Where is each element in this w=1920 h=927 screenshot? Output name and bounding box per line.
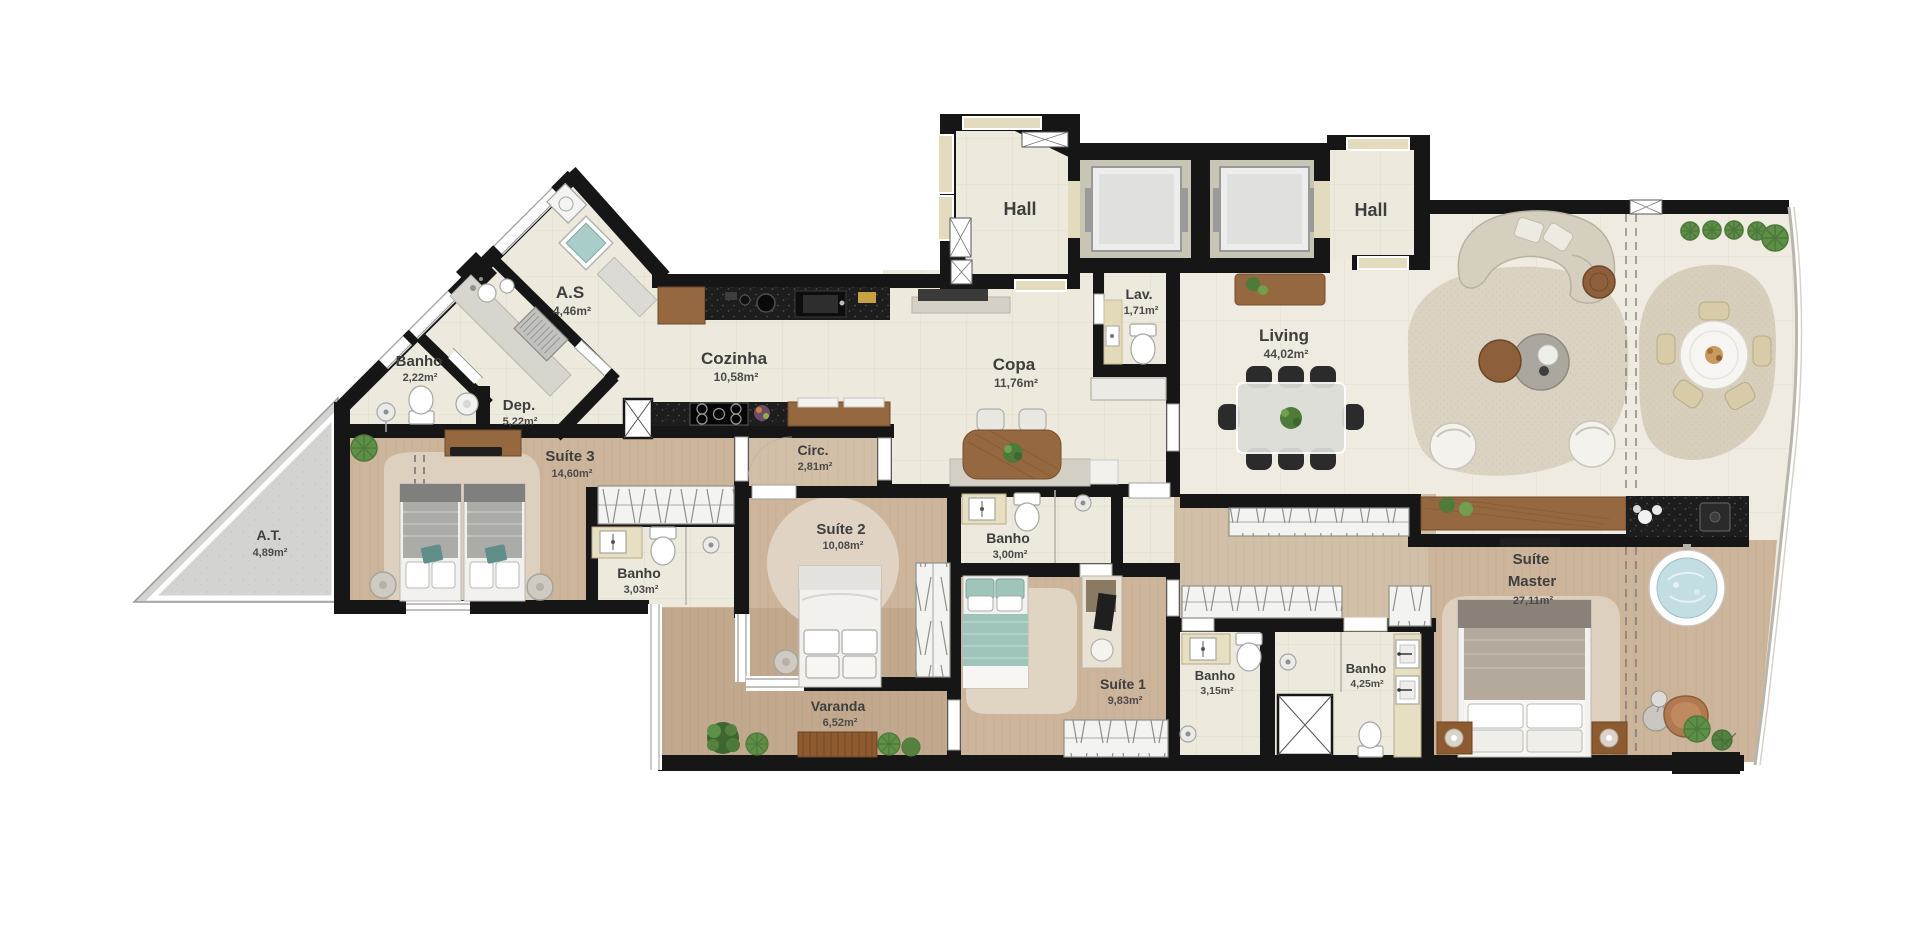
svg-text:5,22m²: 5,22m²	[503, 416, 538, 428]
svg-text:14,60m²: 14,60m²	[552, 468, 593, 480]
svg-text:4,25m²: 4,25m²	[1350, 678, 1384, 690]
svg-text:44,02m²: 44,02m²	[1264, 347, 1309, 361]
svg-text:Living: Living	[1259, 326, 1309, 345]
svg-text:Suíte: Suíte	[1513, 551, 1550, 568]
svg-text:2,81m²: 2,81m²	[798, 461, 833, 473]
svg-text:A.S: A.S	[556, 283, 584, 302]
svg-text:Varanda: Varanda	[811, 698, 866, 714]
svg-text:10,58m²: 10,58m²	[714, 370, 759, 384]
svg-text:Hall: Hall	[1003, 199, 1036, 219]
svg-text:Circ.: Circ.	[797, 442, 828, 458]
svg-text:4,89m²: 4,89m²	[253, 547, 288, 559]
svg-text:Banho: Banho	[1346, 661, 1387, 676]
svg-text:Lav.: Lav.	[1126, 286, 1153, 302]
svg-text:Banho: Banho	[1195, 668, 1236, 683]
svg-text:10,08m²: 10,08m²	[823, 540, 864, 552]
svg-text:Banho: Banho	[396, 353, 443, 370]
svg-text:Suíte 1: Suíte 1	[1100, 676, 1146, 692]
svg-text:Banho: Banho	[986, 530, 1030, 546]
svg-text:11,76m²: 11,76m²	[994, 376, 1038, 390]
svg-text:3,00m²: 3,00m²	[993, 549, 1028, 561]
svg-text:Suíte 3: Suíte 3	[545, 448, 594, 465]
svg-text:Dep.: Dep.	[503, 397, 536, 414]
svg-text:Master: Master	[1508, 573, 1557, 590]
svg-text:3,03m²: 3,03m²	[624, 584, 659, 596]
svg-text:27,11m²: 27,11m²	[1513, 595, 1554, 607]
svg-text:Hall: Hall	[1354, 200, 1387, 220]
svg-text:9,83m²: 9,83m²	[1108, 695, 1143, 707]
svg-text:1,71m²: 1,71m²	[1124, 305, 1159, 317]
svg-text:A.T.: A.T.	[257, 527, 282, 543]
svg-text:Banho: Banho	[617, 565, 661, 581]
svg-text:Cozinha: Cozinha	[701, 349, 768, 368]
svg-text:6,52m²: 6,52m²	[823, 717, 858, 729]
svg-text:Copa: Copa	[993, 355, 1036, 374]
svg-text:3,15m²: 3,15m²	[1200, 685, 1234, 697]
svg-text:2,22m²: 2,22m²	[403, 372, 438, 384]
svg-text:4,46m²: 4,46m²	[553, 304, 591, 318]
svg-text:Suíte 2: Suíte 2	[816, 521, 865, 538]
